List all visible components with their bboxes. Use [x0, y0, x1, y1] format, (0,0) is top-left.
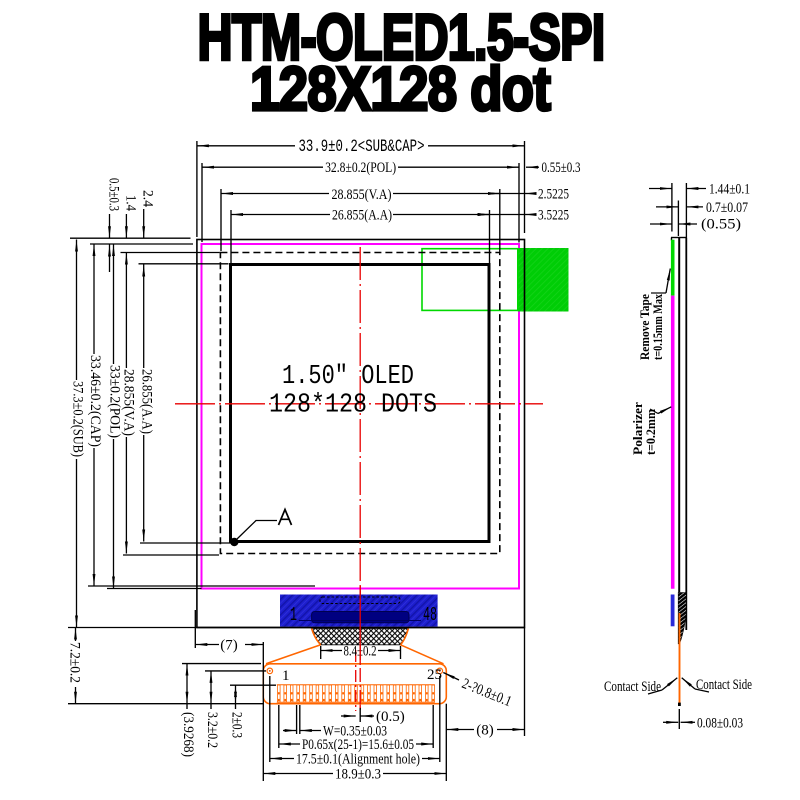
svg-text:33.9±0.2<SUB&CAP>: 33.9±0.2<SUB&CAP>: [299, 137, 425, 157]
svg-text:3.2±0.2: 3.2±0.2: [204, 712, 220, 748]
svg-text:1.44±0.1: 1.44±0.1: [709, 182, 750, 198]
svg-text:t=0.15mm Max: t=0.15mm Max: [650, 294, 665, 360]
svg-text:26.855(A.A): 26.855(A.A): [332, 208, 392, 224]
svg-text:1: 1: [290, 604, 297, 626]
svg-text:7.2±0.2: 7.2±0.2: [67, 642, 83, 683]
svg-text:3.5225: 3.5225: [538, 208, 569, 224]
svg-text:33.46±0.2(CAP): 33.46±0.2(CAP): [87, 355, 103, 447]
svg-text:18.9±0.3: 18.9±0.3: [335, 767, 381, 783]
svg-text:17.5±0.1(Alignment hole): 17.5±0.1(Alignment hole): [296, 752, 420, 768]
svg-text:2.4: 2.4: [140, 190, 156, 207]
svg-text:1.4: 1.4: [122, 195, 138, 211]
svg-text:(0.55): (0.55): [701, 217, 741, 233]
svg-text:2±0.3: 2±0.3: [229, 712, 245, 738]
svg-text:2.5225: 2.5225: [538, 187, 569, 203]
svg-text:1: 1: [282, 668, 290, 684]
svg-text:1.50" OLED: 1.50" OLED: [282, 362, 414, 392]
svg-text:(3.9268): (3.9268): [180, 712, 196, 757]
svg-text:26.855(A.A): 26.855(A.A): [139, 369, 155, 434]
svg-text:t=0.2mm: t=0.2mm: [643, 409, 658, 455]
svg-text:33±0.2(POL): 33±0.2(POL): [107, 365, 123, 438]
svg-text:48: 48: [423, 604, 437, 626]
svg-text:(8): (8): [476, 723, 494, 739]
svg-text:(7): (7): [220, 638, 238, 654]
svg-text:0.08±0.03: 0.08±0.03: [697, 715, 743, 731]
svg-text:128X128 dot: 128X128 dot: [250, 55, 550, 124]
svg-text:28.855(V.A): 28.855(V.A): [120, 369, 136, 436]
svg-text:0.7±0.07: 0.7±0.07: [706, 200, 748, 216]
svg-text:37.3±0.2(SUB): 37.3±0.2(SUB): [70, 381, 86, 457]
svg-text:0.5±0.3: 0.5±0.3: [106, 178, 122, 211]
svg-text:32.8±0.2(POL): 32.8±0.2(POL): [325, 160, 396, 176]
svg-text:0.55±0.3: 0.55±0.3: [542, 160, 581, 176]
svg-text:28.855(V.A): 28.855(V.A): [332, 187, 392, 203]
svg-text:128*128 DOTS: 128*128 DOTS: [269, 391, 437, 421]
